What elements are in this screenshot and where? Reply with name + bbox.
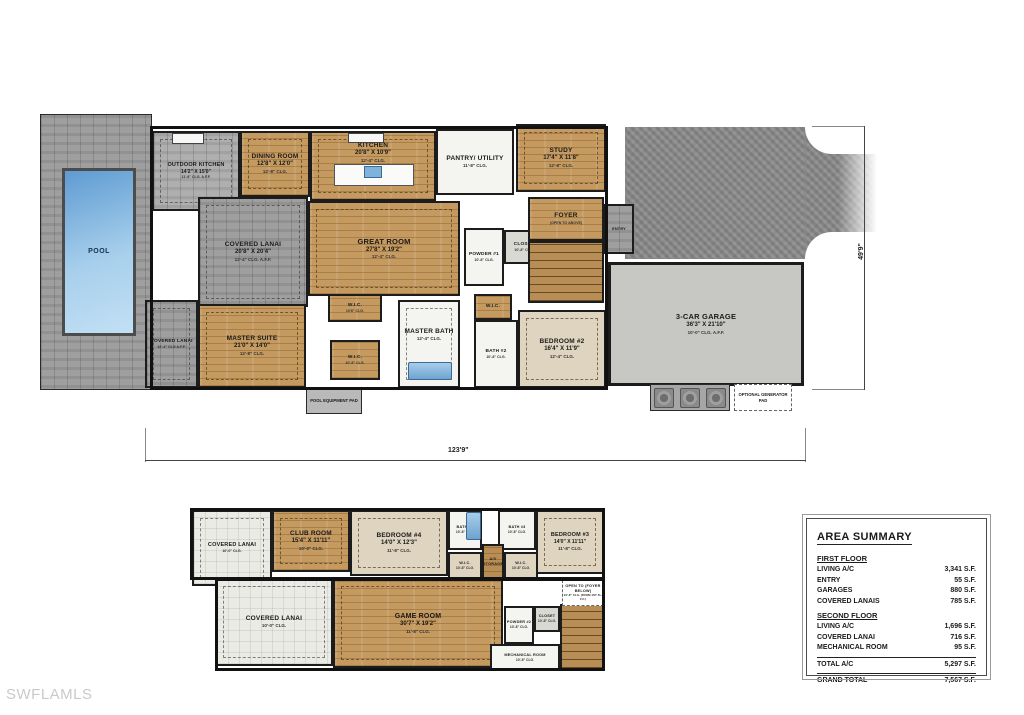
row-label: COVERED LANAIS bbox=[817, 597, 880, 608]
room-label: COVERED LANAI bbox=[150, 339, 192, 345]
dim-line-width bbox=[145, 460, 806, 461]
room-covered-lanai-rear: COVERED LANAI10'-0" CLG. bbox=[215, 578, 333, 666]
floor-plan-canvas: POOL OUTDOOR KITCHEN14'2" X 15'0"11'-8" … bbox=[0, 0, 1024, 715]
bathtub-icon bbox=[408, 362, 452, 380]
room-ceiling: 12'-8" CLG. bbox=[252, 169, 299, 175]
room-label: MASTER SUITE bbox=[227, 335, 278, 343]
room-ceiling: 12'-4" CLG A.F.F. bbox=[150, 345, 192, 350]
row-value: 880 S.F. bbox=[950, 586, 976, 597]
room-ceiling: 12'-4" CLG. bbox=[404, 336, 453, 342]
watermark: SWFLAMLS bbox=[6, 686, 93, 703]
room-label: DINING ROOM bbox=[252, 153, 299, 161]
room-label: POOL bbox=[88, 247, 110, 256]
area-summary-panel: AREA SUMMARY FIRST FLOOR LIVING A/C3,341… bbox=[806, 518, 987, 676]
row-value: 5,297 S.F. bbox=[944, 660, 976, 671]
driveway-fade bbox=[838, 127, 884, 259]
row-label: GRAND TOTAL bbox=[817, 676, 867, 687]
room-size: 21'0" X 14'0" bbox=[227, 343, 278, 351]
ac-unit-icon bbox=[680, 388, 700, 408]
room-wic-4: W.I.C.10'-8" CLG. bbox=[448, 552, 482, 580]
room-wic-c: W.I.C. bbox=[474, 294, 512, 320]
room-ceiling: 11'-8" CLG. bbox=[395, 629, 442, 635]
pad-label: OPTIONAL GENERATOR PAD bbox=[735, 392, 791, 403]
room-label: ENTRY bbox=[612, 227, 626, 232]
room-game-room: GAME ROOM30'7" X 19'2"11'-8" CLG. bbox=[333, 578, 503, 668]
stairs-second-floor bbox=[560, 604, 604, 670]
dim-extension-top bbox=[812, 126, 864, 127]
room-ceiling: 11'-8" CLG. bbox=[446, 163, 503, 169]
room-study: STUDY17'4" X 11'8"12'-8" CLG. bbox=[516, 124, 606, 192]
room-powder-2: POWDER #210'-8" CLG. bbox=[504, 606, 534, 644]
row-label: LIVING A/C bbox=[817, 622, 854, 633]
row-value: 55 S.F. bbox=[954, 576, 976, 587]
room-ceiling: 10'-8" CLG. bbox=[538, 619, 556, 623]
room-ceiling: 10'-8" CLG. bbox=[507, 625, 531, 629]
room-mechanical: MECHANICAL ROOM10'-8" CLG. bbox=[490, 644, 560, 671]
room-size: 14'0" X 11'11" bbox=[551, 539, 589, 546]
room-label: BEDROOM #3 bbox=[551, 532, 589, 539]
room-ceiling: 12'-4" CLG. A.F.F. bbox=[225, 257, 281, 263]
row-value: 1,696 S.F. bbox=[944, 622, 976, 633]
row-value: 716 S.F. bbox=[950, 633, 976, 644]
pool: POOL bbox=[62, 168, 136, 336]
row-value: 785 S.F. bbox=[950, 597, 976, 608]
room-size: 15'4" X 11'11" bbox=[290, 538, 332, 546]
stairs-first-floor bbox=[528, 241, 604, 303]
dim-extension-bottom bbox=[812, 389, 864, 390]
room-ceiling: 11'-8" CLG. A.F.F. bbox=[167, 175, 224, 180]
row-value: 3,341 S.F. bbox=[944, 565, 976, 576]
summary-row: LIVING A/C1,696 S.F. bbox=[817, 622, 976, 633]
room-ceiling: 10'-8" CLG. bbox=[485, 355, 506, 360]
summary-row: ENTRY55 S.F. bbox=[817, 576, 976, 587]
room-label: GREAT ROOM bbox=[357, 237, 410, 247]
room-label: BEDROOM #4 bbox=[377, 532, 422, 540]
room-great-room: GREAT ROOM27'8" X 19'2"12'-4" CLG. bbox=[308, 201, 460, 296]
room-ceiling: 10'-8" CLG. bbox=[512, 566, 530, 570]
area-summary-title: AREA SUMMARY bbox=[817, 531, 912, 545]
optional-generator-pad: OPTIONAL GENERATOR PAD bbox=[734, 384, 792, 411]
room-label: OUTDOOR KITCHEN bbox=[167, 162, 224, 169]
room-powder-1: POWDER #110'-8" CLG. bbox=[464, 228, 504, 286]
room-av-storage: A/V STORAGE bbox=[482, 544, 504, 580]
room-covered-lanai-front: COVERED LANAI10'-0" CLG. bbox=[192, 510, 272, 586]
room-ceiling: 12'-4" CLG. bbox=[540, 354, 585, 360]
room-size: 16'4" X 11'9" bbox=[540, 346, 585, 354]
row-label: TOTAL A/C bbox=[817, 660, 853, 671]
room-size: 36'3" X 21'10" bbox=[676, 322, 736, 330]
room-club-room: CLUB ROOM15'4" X 11'11"10'-0" CLG. bbox=[272, 510, 350, 572]
room-label: PANTRY/ UTILITY bbox=[446, 155, 503, 163]
room-label: FOYER bbox=[550, 212, 582, 220]
room-label: COVERED LANAI bbox=[208, 542, 256, 549]
room-label: W.I.C. bbox=[486, 304, 500, 310]
row-value: 95 S.F. bbox=[954, 643, 976, 654]
outdoor-grill-icon bbox=[172, 133, 204, 144]
room-size: 20'8" X 20'4" bbox=[225, 249, 281, 257]
summary-heading-first-floor: FIRST FLOOR bbox=[817, 554, 976, 563]
pad-label: POOL EQUIPMENT PAD bbox=[310, 398, 358, 403]
bathtub-icon bbox=[466, 512, 481, 540]
summary-heading-second-floor: SECOND FLOOR bbox=[817, 611, 976, 620]
room-ceiling: 10'-8" CLG. bbox=[508, 530, 526, 534]
room-size: 17'4" X 11'8" bbox=[543, 155, 579, 163]
room-label: POWDER #1 bbox=[469, 252, 499, 258]
room-foyer: FOYER(OPEN TO ABOVE) bbox=[528, 197, 604, 241]
room-label: KITCHEN bbox=[355, 142, 391, 150]
room-ceiling: 10'-0" CLG. A.F.F. bbox=[676, 330, 736, 336]
open-to-foyer-below: OPEN TO (FOYER BELOW)24'-8" CLG. (FROM 1… bbox=[562, 580, 604, 606]
room-wic-a: W.I.C.10'8" CLG. bbox=[328, 294, 382, 322]
room-covered-lanai-small: COVERED LANAI12'-4" CLG A.F.F. bbox=[145, 300, 198, 388]
room-ceiling: 12'-8" CLG. bbox=[227, 351, 278, 357]
pool-equipment-pad: POOL EQUIPMENT PAD bbox=[306, 388, 362, 414]
summary-row-grand-total: GRAND TOTAL7,567 S.F. bbox=[817, 673, 976, 687]
room-wic-5: W.I.C.10'-8" CLG. bbox=[504, 552, 538, 580]
ac-unit-icon bbox=[706, 388, 726, 408]
room-label: W.I.C. bbox=[345, 355, 364, 361]
room-label: COVERED LANAI bbox=[246, 615, 302, 623]
room-size: 27'8" X 19'2" bbox=[357, 247, 410, 255]
room-bedroom-4: BEDROOM #414'0" X 12'3"11'-8" CLG. bbox=[350, 510, 448, 576]
room-bath-2: BATH #210'-8" CLG. bbox=[474, 320, 518, 388]
room-ceiling: 10'-8" CLG. bbox=[469, 258, 499, 263]
range-icon bbox=[348, 133, 384, 143]
room-label: STUDY bbox=[543, 147, 579, 155]
dim-label-height: 49'9" bbox=[858, 243, 865, 260]
summary-row: MECHANICAL ROOM95 S.F. bbox=[817, 643, 976, 654]
room-wic-b: W.I.C.10'-8" CLG. bbox=[330, 340, 380, 380]
room-label: COVERED LANAI bbox=[225, 241, 281, 249]
room-size: 12'8" X 12'0" bbox=[252, 161, 299, 169]
room-master-suite: MASTER SUITE21'0" X 14'0"12'-8" CLG. bbox=[198, 304, 306, 388]
room-entry: ENTRY bbox=[604, 204, 634, 254]
row-label: MECHANICAL ROOM bbox=[817, 643, 888, 654]
room-ceiling: 10'-8" CLG. bbox=[345, 361, 364, 366]
room-label: BATH #2 bbox=[485, 349, 506, 355]
dim-label-width: 123'9" bbox=[448, 447, 469, 454]
room-label: A/V STORAGE bbox=[483, 557, 503, 567]
room-closet-2: CLOSET10'-8" CLG. bbox=[534, 606, 560, 632]
room-label: MASTER BATH bbox=[404, 328, 453, 336]
room-ceiling: 10'-0" CLG. bbox=[290, 546, 332, 552]
ac-equipment-pad bbox=[650, 384, 730, 411]
room-pantry-utility: PANTRY/ UTILITY11'-8" CLG. bbox=[436, 129, 514, 195]
room-label: W.I.C. bbox=[346, 303, 364, 309]
kitchen-sink-icon bbox=[364, 166, 382, 178]
dim-extension-right bbox=[805, 428, 806, 462]
room-label: BEDROOM #2 bbox=[540, 338, 585, 346]
room-ceiling: 10'-0" CLG. bbox=[246, 623, 302, 629]
room-size: 14'0" X 12'3" bbox=[377, 540, 422, 548]
room-ceiling: 10'-8" CLG. bbox=[504, 658, 545, 662]
room-bedroom-3: BEDROOM #314'0" X 11'11"11'-8" CLG. bbox=[536, 510, 604, 574]
room-garage: 3-CAR GARAGE36'3" X 21'10"10'-0" CLG. A.… bbox=[608, 262, 804, 386]
room-covered-lanai-main: COVERED LANAI20'8" X 20'4"12'-4" CLG. A.… bbox=[198, 197, 308, 307]
row-label: LIVING A/C bbox=[817, 565, 854, 576]
driveway bbox=[625, 127, 806, 259]
row-value: 7,567 S.F. bbox=[944, 676, 976, 687]
room-ceiling: 11'-8" CLG. bbox=[551, 546, 589, 552]
room-ceiling: 12'-4" CLG. bbox=[357, 254, 410, 260]
room-label: 3-CAR GARAGE bbox=[676, 312, 736, 322]
summary-row: COVERED LANAIS785 S.F. bbox=[817, 597, 976, 608]
room-label: GAME ROOM bbox=[395, 612, 442, 621]
room-ceiling: 10'-8" CLG. bbox=[456, 566, 474, 570]
room-ceiling: 10'-0" CLG. bbox=[208, 549, 256, 554]
room-ceiling: 12'-8" CLG. bbox=[543, 163, 579, 169]
summary-row: LIVING A/C3,341 S.F. bbox=[817, 565, 976, 576]
row-label: GARAGES bbox=[817, 586, 852, 597]
row-label: COVERED LANAI bbox=[817, 633, 875, 644]
room-ceiling: 11'-8" CLG. bbox=[377, 548, 422, 554]
room-size: 20'8" X 10'9" bbox=[355, 150, 391, 158]
room-ceiling: 10'8" CLG. bbox=[346, 309, 364, 314]
dim-extension-left bbox=[145, 428, 146, 462]
summary-row: GARAGES880 S.F. bbox=[817, 586, 976, 597]
room-size: 30'7" X 19'2" bbox=[395, 621, 442, 629]
summary-row-total-ac: TOTAL A/C5,297 S.F. bbox=[817, 657, 976, 671]
room-label: CLUB ROOM bbox=[290, 530, 332, 538]
room-bedroom-2: BEDROOM #216'4" X 11'9"12'-4" CLG. bbox=[518, 310, 606, 388]
room-note: (OPEN TO ABOVE) bbox=[550, 221, 582, 226]
room-note: 24'-8" CLG. (FROM 1ST FL. F.F.) bbox=[563, 594, 603, 602]
summary-row: COVERED LANAI716 S.F. bbox=[817, 633, 976, 644]
row-label: ENTRY bbox=[817, 576, 840, 587]
room-dining: DINING ROOM12'8" X 12'0"12'-8" CLG. bbox=[240, 131, 310, 197]
ac-unit-icon bbox=[654, 388, 674, 408]
